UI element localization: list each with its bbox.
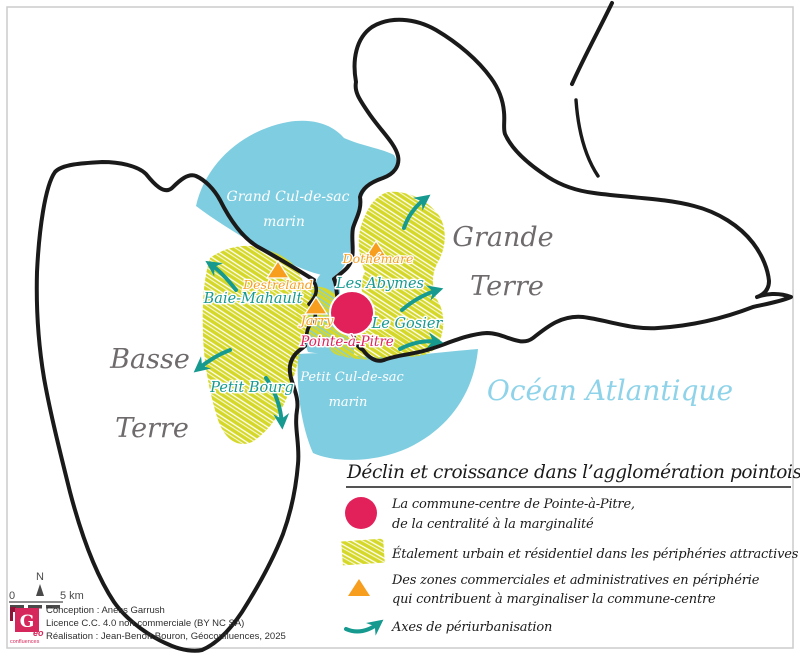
- grand-cul-de-sac-label-line1: Grand Cul-de-sac: [227, 189, 350, 205]
- legend-item1-line1: La commune-centre de Pointe-à-Pitre,: [391, 497, 635, 512]
- pointe-a-pitre-label: Pointe-à-Pitre: [299, 334, 394, 350]
- petit-cul-de-sac-label-line2: marin: [329, 395, 368, 410]
- geoconfluences-logo-confluences: confluences: [10, 639, 40, 645]
- legend-item2-line1: Étalement urbain et résidentiel dans les…: [391, 546, 799, 562]
- scale-distance-label: 5 km: [60, 590, 84, 602]
- basse-terre-label-line2: Terre: [115, 413, 189, 444]
- guadeloupe-map-svg: Grand Cul-de-sac marin Petit Cul-de-sac …: [0, 0, 800, 657]
- north-label: N: [36, 571, 44, 583]
- geoconfluences-logo-eo: éo: [33, 628, 44, 638]
- baie-mahault-label: Baie-Mahault: [203, 291, 303, 307]
- petit-bourg-label: Petit Bourg: [209, 380, 294, 396]
- credit-realisation: Réalisation : Jean-Benoît Bouron, Géocon…: [46, 631, 286, 642]
- scale-zero-label: 0: [9, 590, 15, 602]
- dothemare-label: Dothémare: [342, 251, 414, 266]
- credit-conception: Conception : Aness Garrush: [46, 605, 165, 616]
- ocean-atlantique-label: Océan Atlantique: [487, 374, 733, 407]
- credit-licence: Licence C.C. 4.0 non commerciale (BY NC …: [46, 618, 244, 629]
- legend-item1-line2: de la centralité à la marginalité: [392, 517, 594, 532]
- commune-centre-marker: [330, 291, 374, 335]
- grande-terre-label-line2: Terre: [470, 271, 544, 302]
- legend-commune-centre-icon: [345, 497, 377, 529]
- le-gosier-label: Le Gosier: [371, 316, 444, 332]
- legend-title: Déclin et croissance dans l’agglomératio…: [346, 462, 800, 483]
- grand-cul-de-sac-label-line2: marin: [263, 214, 305, 230]
- petit-cul-de-sac-label-line1: Petit Cul-de-sac: [299, 370, 404, 385]
- jarry-label: Jarry: [298, 314, 334, 329]
- basse-terre-label-line1: Basse: [109, 344, 190, 375]
- destreland-label: Destreland: [242, 277, 313, 292]
- les-abymes-label: Les Abymes: [335, 276, 424, 292]
- grande-terre-label-line1: Grande: [452, 222, 553, 253]
- scale-bar-segment: [28, 605, 42, 609]
- legend-item3-line2: qui contribuent à marginaliser la commun…: [392, 592, 716, 607]
- legend-sprawl-hatch-icon: [341, 539, 385, 566]
- legend-item3-line1: Des zones commerciales et administrative…: [391, 573, 760, 588]
- legend-item4-line1: Axes de périurbanisation: [391, 620, 552, 635]
